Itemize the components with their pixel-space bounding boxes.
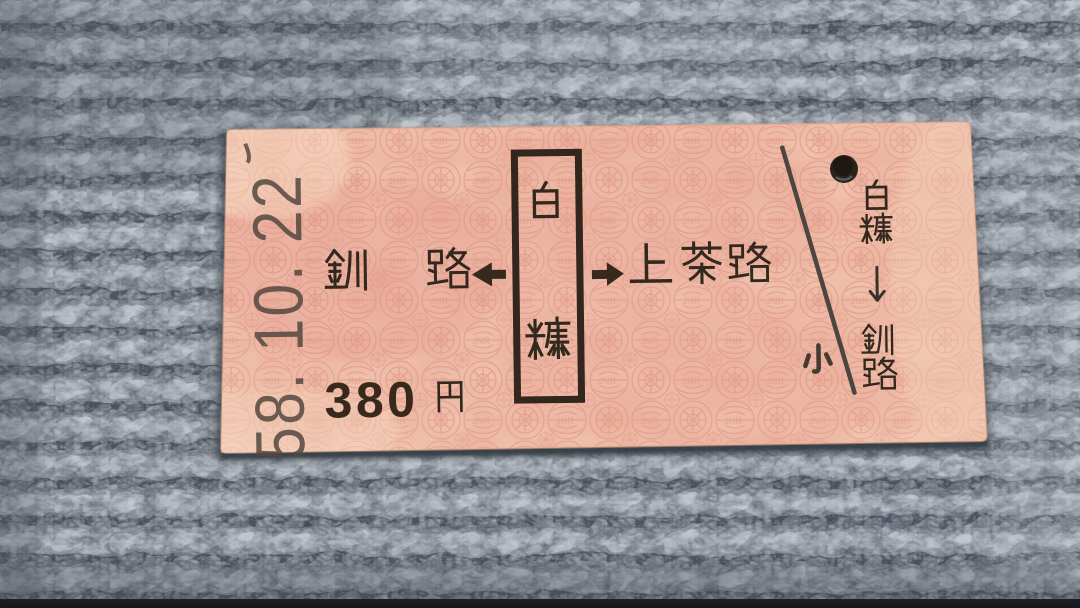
svg-text:380: 380 [324, 371, 419, 428]
svg-text:58. 10. 22: 58. 10. 22 [238, 172, 319, 460]
